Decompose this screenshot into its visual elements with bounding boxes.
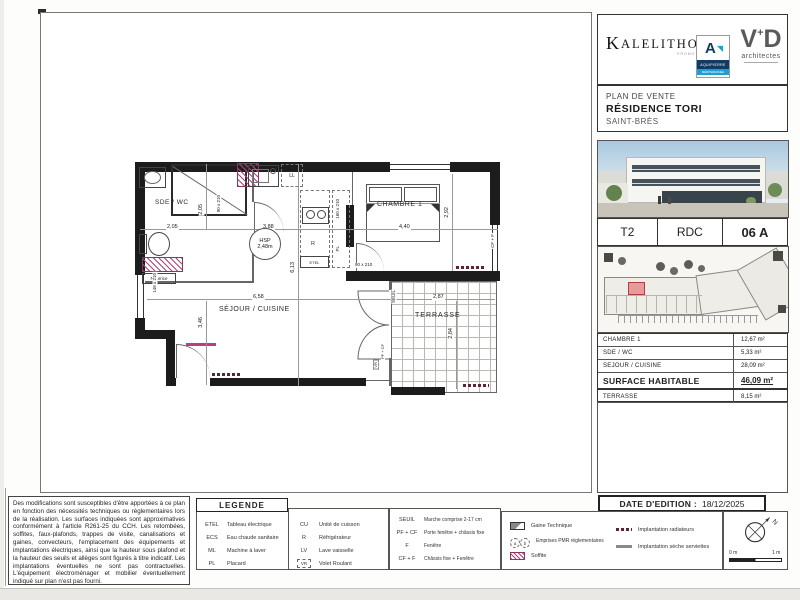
legend-item: CF + FChâssis fixe + Fenêtre — [390, 552, 500, 565]
legend-label: Fenêtre — [424, 543, 441, 549]
site-tree — [698, 265, 705, 272]
scale-bar — [729, 558, 782, 562]
window-size-label: 148 x 210 — [153, 272, 158, 294]
legend-item: VRVolet Roulant — [289, 557, 388, 570]
partition-line — [366, 380, 389, 381]
legend-label: Porte fenêtre + châssis fixe — [424, 530, 484, 536]
dim-label: 3,46 — [199, 316, 205, 329]
wall-segment — [490, 271, 500, 281]
row-value: 28,09 m² — [733, 360, 787, 372]
aquipierre-name: AQUIPIERRE — [700, 63, 726, 67]
washer-slot: LL — [281, 164, 303, 187]
legend-col-2: CUUnité de cuisson RRéfrigérateur LVLave… — [288, 509, 388, 569]
legend-box-c: Gaine Technique ab Emprises PMR réglemen… — [501, 511, 723, 570]
site-corner-block — [604, 253, 613, 262]
etel-box: ETEL — [300, 256, 329, 268]
photo-person — [658, 196, 661, 204]
photo-person — [668, 197, 671, 204]
legend-label: Unité de cuisson — [319, 522, 360, 528]
vd-v: V — [740, 27, 757, 52]
photo-rail — [632, 169, 760, 170]
legend-label: Implantation radiateurs — [638, 527, 694, 533]
edition-label: DATE D'EDITION : — [619, 499, 697, 509]
unit-number-cell: 06 A — [722, 219, 787, 245]
legend-item: LVLave vaisselle — [289, 544, 388, 557]
title-block: PLAN DE VENTE RÉSIDENCE TORI SAINT-BRÈS — [597, 85, 788, 132]
legend-item: Implantation radiateurs — [616, 521, 722, 538]
legend-box-a: ETELTableau électrique ECSEau chaude san… — [196, 508, 389, 570]
site-plan — [597, 246, 789, 333]
site-corner-block — [778, 305, 786, 313]
north-letter: N — [771, 518, 779, 526]
washbasin-bowl — [144, 171, 161, 184]
dimension-line — [452, 174, 453, 271]
wall-segment — [166, 378, 176, 386]
dimension-line — [206, 164, 207, 230]
room-label-chambre: CHAMBRE 1 — [377, 201, 422, 208]
dim-label: 2,87 — [432, 295, 445, 301]
toilet-tank — [139, 234, 147, 254]
legend-abbr: ECS — [197, 535, 227, 541]
legend-item: ab Emprises PMR réglementaires — [510, 533, 612, 548]
unit-type: T2 — [620, 225, 634, 239]
legend-item: ETELTableau électrique — [197, 518, 288, 531]
dim-label: 2,05 — [199, 203, 205, 216]
radiator-legend-icon — [616, 528, 632, 531]
site-highlighted-unit — [628, 282, 645, 295]
door-size-label: 90 x 210 — [354, 263, 373, 268]
dim-label: 4,40 — [398, 225, 411, 231]
window-chambre — [390, 164, 450, 170]
logos-box: KALELITHOS PROMOTION A ◥ AQUIPIERRE MÉDI… — [597, 14, 788, 85]
legend-label: Volet Roulant — [319, 561, 352, 567]
radiator — [463, 384, 489, 387]
legend-label: Châssis fixe + Fenêtre — [424, 556, 474, 562]
legend-col-5: Implantation radiateurs Implantation sèc… — [612, 512, 722, 569]
city-name: SAINT-BRÈS — [606, 117, 779, 126]
closet-size: 160 x 210 — [336, 198, 341, 220]
dimension-line — [206, 301, 207, 385]
legend-abbr: PL — [197, 561, 227, 567]
legend-item: Soffite — [510, 548, 612, 563]
legend-abbr: CU — [289, 522, 319, 528]
site-tree — [618, 257, 626, 265]
north-compass-icon: N — [736, 513, 780, 547]
radiator — [212, 373, 242, 376]
legend-item: Implantation sèche serviettes — [616, 538, 722, 555]
scanned-plan-page: { "branding": { "kalelithos": "KALELITHO… — [0, 0, 800, 600]
legend-item: RRéfrigérateur — [289, 531, 388, 544]
photo-tree — [606, 185, 622, 201]
row-value: 12,67 m² — [733, 334, 787, 346]
table-total-row: SURFACE HABITABLE 46,09 m² — [598, 373, 787, 390]
unit-type-cell: T2 — [598, 219, 657, 245]
dim-label: 6,13 — [291, 261, 297, 274]
doc-type: PLAN DE VENTE — [606, 92, 779, 101]
site-corner-block — [773, 251, 783, 261]
edition-date-box: DATE D'EDITION : 18/12/2025 — [598, 495, 766, 512]
legend-item: PLPlacard — [197, 557, 288, 570]
legend-item: PF + CFPorte fenêtre + châssis fixe — [390, 526, 500, 539]
building-photo — [597, 140, 789, 218]
legend-abbr: LV — [289, 548, 319, 554]
towel-dryer-legend-icon — [616, 545, 632, 548]
wall-segment — [346, 271, 500, 281]
aquipierre-triangle-icon: ◥ — [717, 44, 723, 53]
legend-abbr: CF + F — [390, 556, 424, 562]
notes-empty-box — [597, 402, 788, 493]
legend-abbr: SEUIL — [390, 517, 424, 523]
vd-d: D — [764, 27, 782, 52]
kitchen-sink-basin — [252, 169, 269, 183]
legend-label: Machine à laver — [227, 548, 266, 554]
table-row: CHAMBRE 1 12,67 m² — [598, 334, 787, 347]
vd-rule — [744, 62, 778, 63]
dim-label: 6,58 — [252, 295, 265, 301]
table-row: SEJOUR / CUISINE 28,09 m² — [598, 360, 787, 373]
bed-pillow — [369, 187, 402, 202]
aquipierre-letter: A — [705, 40, 716, 57]
photo-tree — [768, 183, 782, 197]
cooktop-burner — [306, 210, 315, 219]
legend-item: FFenêtre — [390, 539, 500, 552]
radiator — [456, 266, 486, 269]
nourrice-box: Nourrice — [142, 273, 176, 284]
closet-label: PL — [336, 245, 341, 253]
dim-label: 2,05 — [166, 225, 179, 231]
unit-number: 06 A — [741, 225, 768, 240]
legend-item: ECSEau chaude sanitaire — [197, 531, 288, 544]
room-label-sdewc: SDE / WC — [155, 199, 189, 206]
fridge-label: R — [311, 241, 315, 247]
row-label: CHAMBRE 1 — [598, 337, 733, 343]
washer-label: LL — [289, 173, 295, 179]
site-balcony-ticks — [618, 315, 758, 323]
legend-label: Implantation sèche serviettes — [638, 544, 709, 550]
towel-dryer-mark — [186, 343, 216, 346]
threshold-label: SEUIL — [392, 289, 397, 304]
bed-pillow — [404, 187, 437, 202]
dimension-line — [140, 229, 498, 230]
disclaimer-text: Des modifications sont susceptibles d'êt… — [13, 500, 185, 586]
legend-abbr: ML — [197, 548, 227, 554]
site-tree — [670, 267, 678, 275]
legend-title: LEGENDE — [219, 501, 265, 510]
cooktop-burner — [317, 210, 326, 219]
terrace-french-doors — [355, 290, 391, 360]
total-label: SURFACE HABITABLE — [598, 376, 733, 386]
door-size-label: 90 x 210 — [217, 194, 222, 213]
etel-label: ETEL — [309, 260, 319, 265]
wall-segment — [490, 162, 500, 225]
compass-box: N 0 m 1 m — [723, 511, 788, 570]
soffite-icon — [510, 552, 525, 560]
soffite-wc — [142, 257, 183, 272]
pmr-clearance-icon: ab — [510, 532, 530, 550]
wall-segment — [391, 387, 445, 395]
legend-item: SEUILMarche comprise 2-17 cm — [390, 513, 500, 526]
legend-box-b: SEUILMarche comprise 2-17 cm PF + CFPort… — [389, 508, 501, 570]
legend-abbr: F — [390, 543, 424, 549]
scale-one: 1 m — [772, 550, 780, 556]
row-value: 5,33 m² — [733, 347, 787, 359]
unit-row: T2 RDC 06 A — [597, 218, 788, 246]
scale-zero: 0 m — [729, 550, 737, 556]
dim-label: 2,84 — [449, 327, 455, 340]
door-type-label: PF + CF — [381, 343, 385, 360]
ceiling-height-badge: HSP 2,48m — [249, 228, 281, 260]
aquipierre-mark: A ◥ — [697, 36, 731, 60]
areas-table: CHAMBRE 1 12,67 m² SDE / WC 5,33 m² SEJO… — [597, 333, 788, 402]
shutter-legend-icon: VR — [289, 561, 319, 567]
legend-label: Marche comprise 2-17 cm — [424, 517, 482, 523]
photo-ground — [598, 203, 789, 218]
shutter-label: VR — [373, 360, 379, 370]
window-type-label: CF + F — [491, 233, 496, 249]
kitchen-faucet — [270, 168, 276, 174]
kalelithos-logo: KALELITHOS PROMOTION — [606, 33, 708, 56]
residence-name: RÉSIDENCE TORI — [606, 103, 779, 115]
site-tree — [656, 262, 665, 271]
dimension-line — [298, 164, 299, 386]
legend-title-tab: LEGENDE — [196, 498, 288, 512]
kalelithos-k: K — [606, 33, 621, 53]
hsp-value: 2,48m — [257, 244, 272, 250]
photo-rail — [632, 183, 760, 184]
disclaimer-box: Des modifications sont susceptibles d'êt… — [8, 496, 190, 585]
aquipierre-logo: A ◥ AQUIPIERRE MÉDITERRANÉE — [696, 35, 730, 78]
table-row: SDE / WC 5,33 m² — [598, 347, 787, 360]
entry-door — [176, 344, 210, 378]
legend-label: Gaine Technique — [531, 523, 572, 529]
legend-label: Réfrigérateur — [319, 535, 351, 541]
room-label-sejour: SÉJOUR / CUISINE — [219, 306, 290, 313]
legend-label: Lave vaisselle — [319, 548, 354, 554]
row-label: SEJOUR / CUISINE — [598, 363, 733, 369]
site-tree — [684, 260, 693, 269]
kalelithos-name: ALELITHOS — [621, 37, 708, 51]
vd-architectes-logo: V + D architectes — [738, 27, 784, 79]
legend-label: Tableau électrique — [227, 522, 272, 528]
legend-label: Emprises PMR réglementaires — [536, 538, 604, 544]
dim-label: 2,92 — [445, 206, 451, 219]
site-unit-divisions — [606, 295, 702, 313]
legend-label: Soffite — [531, 553, 547, 559]
unit-floor-cell: RDC — [657, 219, 722, 245]
vd-sub: architectes — [738, 53, 784, 60]
partition-line — [352, 172, 353, 205]
legend-label: Eau chaude sanitaire — [227, 535, 279, 541]
toilet-bowl — [148, 232, 170, 256]
row-label: SDE / WC — [598, 350, 733, 356]
legend-col-4: Gaine Technique ab Emprises PMR réglemen… — [502, 512, 612, 569]
legend-abbr: R — [289, 535, 319, 541]
legend-label: Placard — [227, 561, 246, 567]
legend-item: MLMachine à laver — [197, 544, 288, 557]
wall-segment — [210, 378, 366, 386]
legend-abbr: PF + CF — [390, 530, 424, 536]
aquipierre-sub-bar: MÉDITERRANÉE — [697, 69, 729, 75]
legend-col-1: ETELTableau électrique ECSEau chaude san… — [197, 509, 288, 569]
terrace-label: TERRASSE — [598, 394, 733, 400]
aquipierre-sub: MÉDITERRANÉE — [702, 70, 724, 74]
aquipierre-name-bar: AQUIPIERRE — [697, 60, 729, 69]
edition-date: 18/12/2025 — [702, 499, 745, 509]
legend-item: CUUnité de cuisson — [289, 518, 388, 531]
total-value: 46,09 m² — [733, 373, 787, 388]
legend-abbr: ETEL — [197, 522, 227, 528]
room-label-terrasse: TERRASSE — [415, 312, 461, 319]
gaine-technique-icon — [510, 522, 525, 530]
unit-floor: RDC — [677, 225, 703, 239]
